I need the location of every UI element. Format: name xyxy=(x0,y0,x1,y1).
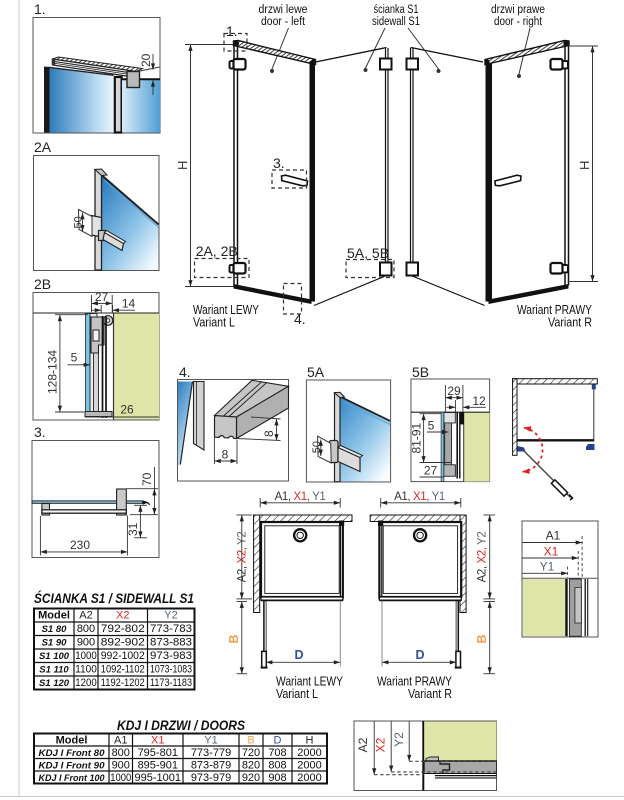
svg-text:sidewall S1: sidewall S1 xyxy=(372,16,420,28)
svg-text:ŚCIANKA S1 / SIDEWALL S1: ŚCIANKA S1 / SIDEWALL S1 xyxy=(34,591,194,606)
svg-text:ścianka S1: ścianka S1 xyxy=(374,4,419,16)
svg-text:27: 27 xyxy=(424,464,438,478)
svg-text:Model: Model xyxy=(56,734,88,746)
svg-text:800: 800 xyxy=(112,747,130,759)
svg-text:D: D xyxy=(415,648,424,662)
svg-text:S1 120: S1 120 xyxy=(39,678,70,689)
svg-text:1200: 1200 xyxy=(75,677,97,689)
svg-text:B: B xyxy=(227,634,241,643)
svg-text:H: H xyxy=(175,161,190,170)
svg-text:27: 27 xyxy=(95,290,109,304)
svg-text:X2: X2 xyxy=(374,737,388,752)
svg-text:B: B xyxy=(247,734,254,746)
svg-text:795-801: 795-801 xyxy=(138,747,178,759)
svg-text:Variant L: Variant L xyxy=(276,687,318,701)
svg-text:Variant L: Variant L xyxy=(193,316,235,330)
svg-text:A2, X2, Y2: A2, X2, Y2 xyxy=(237,532,249,583)
svg-text:1000: 1000 xyxy=(110,772,131,784)
svg-text:Y1: Y1 xyxy=(540,560,555,574)
svg-text:A2, X2, Y2: A2, X2, Y2 xyxy=(477,532,489,583)
svg-text:drzwi prawe: drzwi prawe xyxy=(491,4,545,16)
svg-text:A2: A2 xyxy=(79,610,92,622)
svg-text:5: 5 xyxy=(71,351,78,365)
svg-text:1000: 1000 xyxy=(75,650,97,662)
svg-text:708: 708 xyxy=(268,747,286,759)
svg-text:2000: 2000 xyxy=(297,772,321,784)
svg-text:KDJ I Front 80: KDJ I Front 80 xyxy=(39,748,106,759)
svg-text:S1 110: S1 110 xyxy=(39,665,69,676)
svg-text:1092-1102: 1092-1102 xyxy=(101,664,145,676)
svg-text:H: H xyxy=(577,161,592,170)
svg-text:1.: 1. xyxy=(34,1,46,17)
svg-text:26: 26 xyxy=(120,403,134,417)
svg-text:3.: 3. xyxy=(34,424,46,440)
svg-text:D: D xyxy=(274,734,282,746)
svg-text:14: 14 xyxy=(122,297,136,311)
svg-text:1192-1202: 1192-1202 xyxy=(101,677,145,689)
svg-text:B: B xyxy=(475,634,489,643)
svg-text:2000: 2000 xyxy=(297,759,321,771)
svg-text:KDJ I DRZWI / DOORS: KDJ I DRZWI / DOORS xyxy=(117,718,245,733)
svg-text:KDJ I Front 100: KDJ I Front 100 xyxy=(39,773,106,784)
svg-text:door - left: door - left xyxy=(261,16,306,28)
svg-text:908: 908 xyxy=(268,772,286,784)
svg-text:Y2: Y2 xyxy=(164,610,177,622)
svg-text:door - right: door - right xyxy=(494,16,543,28)
svg-text:800: 800 xyxy=(77,623,95,635)
svg-text:892-902: 892-902 xyxy=(101,637,145,649)
svg-text:X2: X2 xyxy=(116,610,129,622)
svg-text:X1: X1 xyxy=(151,734,164,746)
svg-text:3.: 3. xyxy=(273,155,285,171)
svg-text:1173-1183: 1173-1183 xyxy=(150,677,192,689)
svg-text:29: 29 xyxy=(447,384,461,398)
svg-text:973-983: 973-983 xyxy=(150,650,192,662)
svg-text:Y2: Y2 xyxy=(392,732,406,747)
svg-text:31: 31 xyxy=(126,522,140,536)
svg-text:973-979: 973-979 xyxy=(191,772,231,784)
svg-text:4.: 4. xyxy=(294,311,306,327)
svg-text:873-879: 873-879 xyxy=(191,759,231,771)
svg-text:81-91: 81-91 xyxy=(409,422,423,453)
svg-text:8: 8 xyxy=(262,430,276,437)
svg-text:X1: X1 xyxy=(544,545,559,559)
svg-text:128-134: 128-134 xyxy=(46,350,60,394)
svg-text:2000: 2000 xyxy=(297,747,321,759)
svg-text:A1, X1, Y1: A1, X1, Y1 xyxy=(275,491,326,503)
svg-text:2A, 2B: 2A, 2B xyxy=(196,243,238,259)
svg-text:995-1001: 995-1001 xyxy=(135,772,182,784)
svg-text:895-901: 895-901 xyxy=(138,759,178,771)
svg-text:50: 50 xyxy=(311,441,323,453)
svg-text:drzwi lewe: drzwi lewe xyxy=(259,4,308,16)
svg-text:920: 920 xyxy=(242,772,260,784)
svg-text:20: 20 xyxy=(139,53,153,67)
svg-text:S1 80: S1 80 xyxy=(42,624,68,635)
svg-text:2B: 2B xyxy=(34,276,51,292)
svg-text:A2: A2 xyxy=(356,737,370,752)
svg-text:D: D xyxy=(294,648,303,662)
svg-text:H: H xyxy=(306,734,314,746)
svg-text:Model: Model xyxy=(38,610,70,622)
svg-text:230: 230 xyxy=(70,538,90,552)
svg-text:1073-1083: 1073-1083 xyxy=(150,664,192,676)
svg-text:820: 820 xyxy=(242,759,260,771)
svg-text:992-1002: 992-1002 xyxy=(101,650,145,662)
svg-text:5A: 5A xyxy=(307,364,325,380)
svg-text:773-779: 773-779 xyxy=(191,747,231,759)
svg-text:773-783: 773-783 xyxy=(150,623,192,635)
svg-text:900: 900 xyxy=(112,759,130,771)
svg-text:5: 5 xyxy=(428,419,435,433)
svg-text:S1 90: S1 90 xyxy=(42,638,68,649)
svg-text:Variant R: Variant R xyxy=(548,316,592,330)
svg-text:KDJ I Front 90: KDJ I Front 90 xyxy=(39,760,106,771)
svg-text:A1: A1 xyxy=(114,734,127,746)
svg-text:Variant R: Variant R xyxy=(408,687,452,701)
svg-text:873-883: 873-883 xyxy=(150,637,192,649)
svg-text:808: 808 xyxy=(268,759,286,771)
svg-text:4.: 4. xyxy=(179,364,191,380)
svg-text:Y1: Y1 xyxy=(204,734,217,746)
svg-text:792-802: 792-802 xyxy=(101,623,145,635)
svg-text:1.: 1. xyxy=(226,23,238,39)
svg-text:2A: 2A xyxy=(34,139,52,155)
svg-text:5B: 5B xyxy=(412,364,429,380)
svg-text:A1, X1, Y1: A1, X1, Y1 xyxy=(394,491,445,503)
svg-text:S1 100: S1 100 xyxy=(39,651,70,662)
svg-text:A1: A1 xyxy=(546,529,561,543)
svg-text:1100: 1100 xyxy=(75,664,97,676)
svg-text:70: 70 xyxy=(140,472,154,486)
svg-text:8: 8 xyxy=(222,448,229,462)
svg-text:720: 720 xyxy=(242,747,260,759)
svg-text:12: 12 xyxy=(472,394,486,408)
svg-text:5A, 5B: 5A, 5B xyxy=(347,245,389,261)
svg-text:50: 50 xyxy=(73,216,85,228)
svg-text:900: 900 xyxy=(77,637,95,649)
